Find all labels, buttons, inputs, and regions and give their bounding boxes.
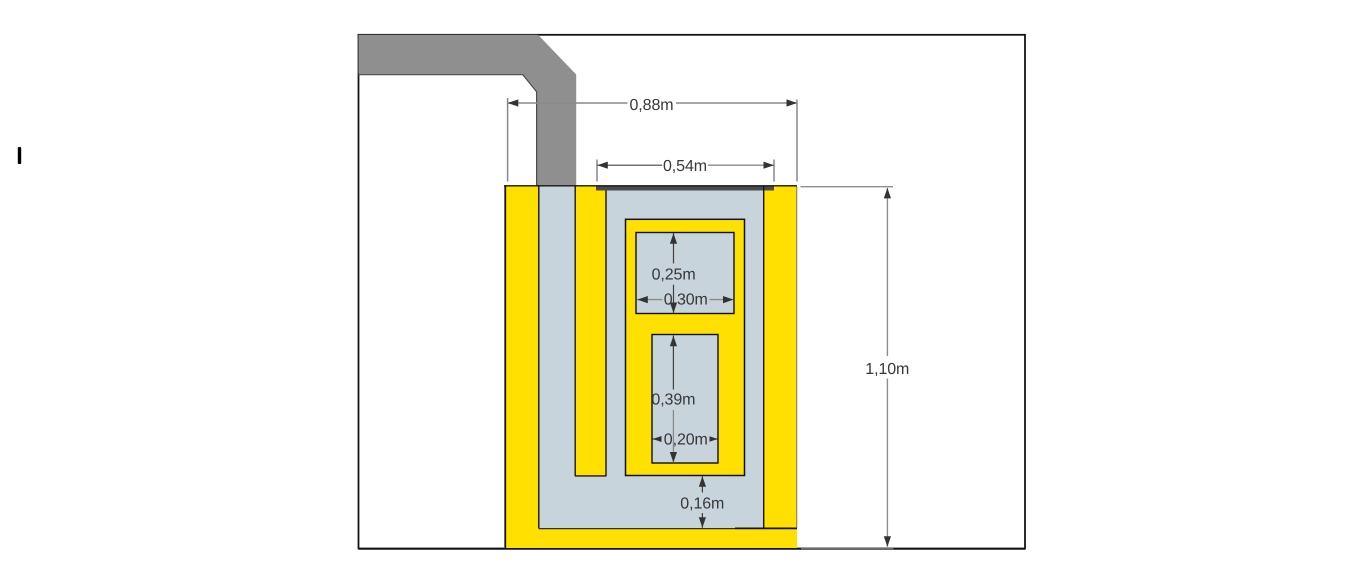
svg-text:0,88m: 0,88m [630,97,674,114]
svg-text:0,54m: 0,54m [663,158,707,175]
svg-text:0,30m: 0,30m [664,292,708,309]
svg-text:0,20m: 0,20m [664,432,708,449]
svg-text:0,39m: 0,39m [651,392,695,409]
svg-text:0,25m: 0,25m [652,267,696,284]
svg-text:1,10m: 1,10m [865,361,909,378]
svg-text:0,16m: 0,16m [680,495,724,512]
